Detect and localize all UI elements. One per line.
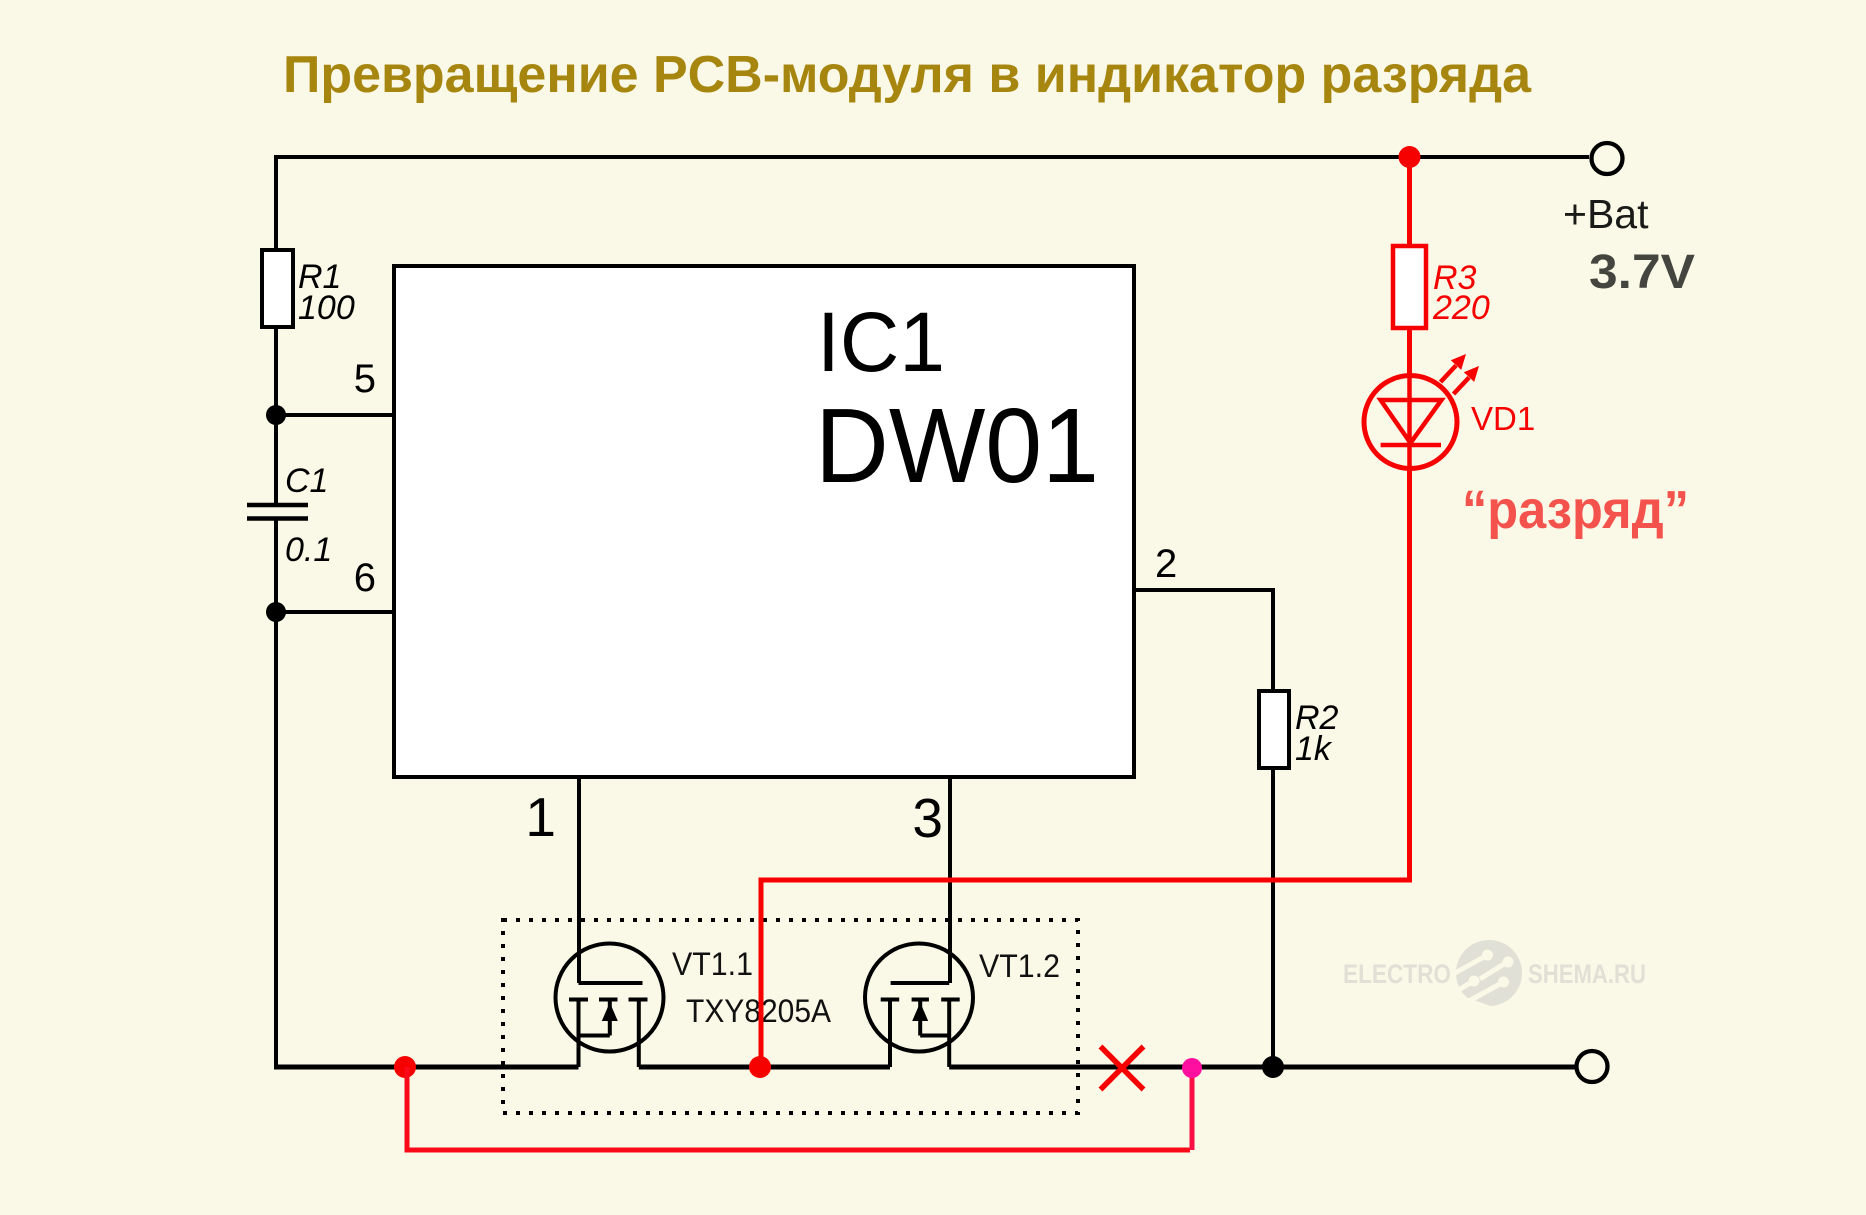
svg-text:+Bat: +Bat (1563, 191, 1649, 237)
svg-text:IC1: IC1 (817, 295, 945, 389)
svg-text:DW01: DW01 (815, 387, 1099, 505)
svg-text:ELECTRO: ELECTRO (1343, 959, 1451, 989)
svg-text:0.1: 0.1 (285, 531, 332, 569)
svg-text:SHEMA.RU: SHEMA.RU (1528, 959, 1646, 989)
svg-text:C1: C1 (285, 462, 328, 500)
svg-text:5: 5 (354, 357, 376, 401)
svg-text:6: 6 (354, 556, 376, 600)
svg-text:100: 100 (298, 289, 355, 327)
svg-text:1k: 1k (1295, 730, 1333, 768)
svg-text:3.7V: 3.7V (1589, 246, 1695, 299)
svg-text:“разряд”: “разряд” (1462, 480, 1689, 540)
svg-text:VT1.2: VT1.2 (979, 948, 1060, 984)
svg-text:1: 1 (525, 786, 556, 848)
svg-text:Превращение PCB-модуля в индик: Превращение PCB-модуля в индикатор разря… (283, 46, 1532, 104)
svg-text:VT1.1: VT1.1 (672, 946, 753, 982)
svg-text:220: 220 (1432, 289, 1490, 327)
svg-text:VD1: VD1 (1471, 400, 1535, 437)
svg-text:2: 2 (1155, 542, 1177, 586)
svg-text:3: 3 (912, 787, 943, 849)
